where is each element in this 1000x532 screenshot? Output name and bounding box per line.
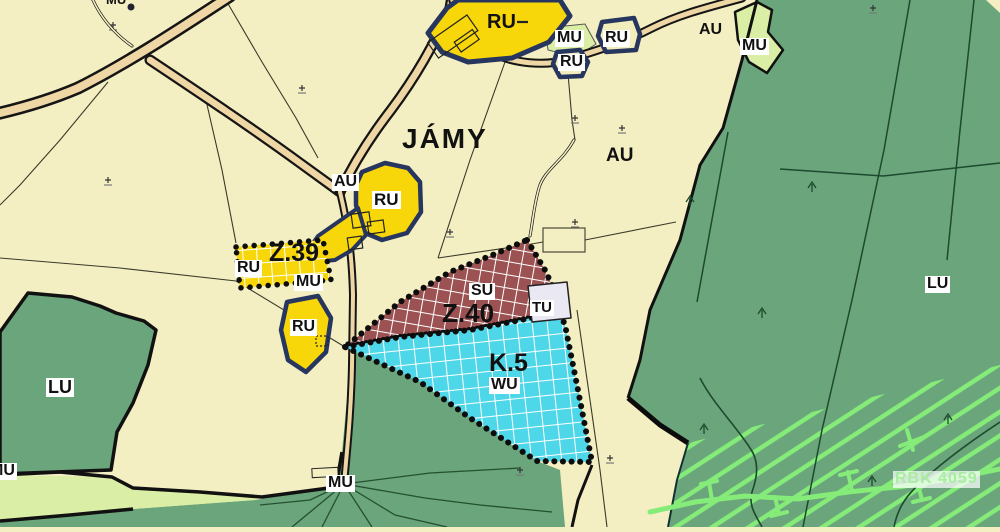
area-label-lu: LU	[925, 276, 950, 293]
area-label-z-40: Z.40	[440, 300, 496, 327]
area-label-j-my: JÁMY	[400, 124, 490, 153]
map-canvas[interactable]	[0, 0, 1000, 527]
area-label-mu: MU	[104, 0, 128, 7]
area-label-ru: RU	[290, 319, 317, 336]
area-label-au: AU	[332, 174, 359, 191]
area-label-ru: RU	[485, 12, 518, 33]
area-label-lu: LU	[46, 378, 74, 397]
area-label-ru: RU	[603, 30, 630, 47]
zoning-map	[0, 0, 1000, 527]
area-label-mu: MU	[0, 463, 17, 480]
area-label-ru: RU	[372, 191, 401, 209]
area-label-wu: WU	[489, 377, 520, 394]
area-label-mu: MU	[555, 30, 584, 47]
area-label-au: AU	[604, 146, 635, 166]
zoning-map-page: { "map": { "place_name": "JÁMY", "zone_i…	[0, 0, 1000, 527]
area-label-mu: MU	[294, 274, 323, 291]
area-label-k-5: K.5	[487, 350, 530, 376]
area-label-rbk-4059: RBK 4059	[893, 471, 980, 488]
area-label-ru: RU	[235, 260, 262, 277]
area-label-mu: MU	[740, 38, 769, 55]
area-label-ru: RU	[558, 54, 585, 71]
area-label-mu: MU	[326, 475, 355, 492]
area-label-z-39: Z.39	[267, 240, 321, 266]
area-label-au: AU	[697, 22, 724, 39]
area-label-tu: TU	[530, 300, 554, 316]
